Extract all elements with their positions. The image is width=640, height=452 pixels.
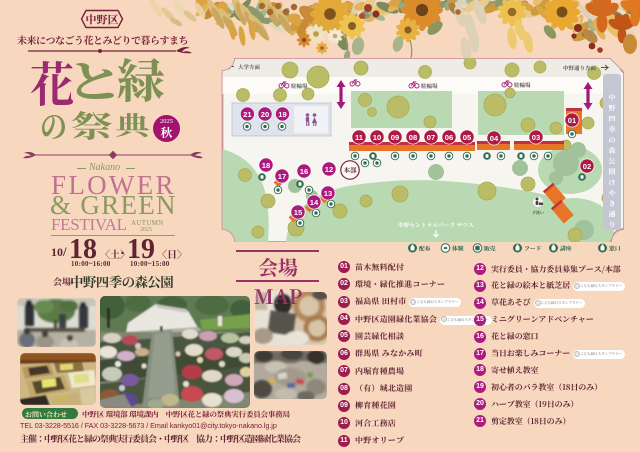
svg-text:10: 10 [373, 133, 381, 142]
svg-text:05: 05 [463, 133, 472, 142]
svg-text:大学方面: 大学方面 [238, 63, 261, 71]
svg-text:の: の [609, 135, 616, 145]
svg-text:り: り [609, 220, 616, 230]
svg-text:本部: 本部 [344, 166, 358, 175]
svg-text:04: 04 [490, 134, 499, 143]
svg-text:16: 16 [300, 167, 308, 176]
svg-text:21: 21 [243, 110, 252, 119]
svg-text:駐輪場: 駐輪場 [513, 81, 531, 89]
svg-text:中野通り方面: 中野通り方面 [563, 64, 597, 72]
svg-text:通: 通 [609, 210, 616, 220]
svg-text:フード: フード [524, 244, 542, 253]
svg-text:季: 季 [609, 125, 616, 135]
svg-text:販売: 販売 [484, 244, 496, 253]
svg-text:19: 19 [278, 110, 286, 119]
svg-text:17: 17 [278, 172, 286, 181]
svg-text:駐輪場: 駐輪場 [420, 82, 438, 90]
svg-text:11: 11 [355, 133, 364, 142]
svg-text:20: 20 [261, 110, 269, 119]
svg-text:18: 18 [262, 161, 270, 170]
svg-text:06: 06 [445, 133, 453, 142]
svg-text:四: 四 [609, 114, 616, 124]
svg-text:14: 14 [310, 198, 319, 207]
svg-text:07: 07 [427, 133, 435, 142]
svg-text:や: や [609, 188, 616, 198]
svg-text:中野区: 中野区 [86, 12, 119, 28]
svg-text:野: 野 [609, 104, 616, 114]
svg-text:中野セントラルパーク サウス: 中野セントラルパーク サウス [398, 221, 474, 229]
svg-text:15: 15 [294, 208, 303, 217]
svg-text:09: 09 [391, 133, 399, 142]
svg-text:講座: 講座 [560, 244, 572, 253]
svg-text:中: 中 [609, 93, 616, 103]
svg-text:12: 12 [325, 165, 333, 174]
svg-text:03: 03 [532, 133, 540, 142]
svg-text:手洗い: 手洗い [532, 210, 544, 216]
svg-text:き: き [609, 199, 616, 209]
svg-text:公: 公 [609, 157, 617, 167]
svg-text:01: 01 [568, 116, 577, 125]
svg-text:窓口: 窓口 [608, 244, 621, 253]
svg-text:け: け [609, 178, 616, 188]
svg-text:02: 02 [583, 162, 591, 171]
svg-text:13: 13 [324, 189, 332, 198]
svg-text:森: 森 [609, 146, 616, 156]
svg-text:配布: 配布 [419, 244, 431, 253]
svg-text:駐輪場: 駐輪場 [290, 82, 308, 90]
svg-text:08: 08 [409, 133, 417, 142]
svg-text:園: 園 [609, 167, 616, 177]
svg-text:体験: 体験 [452, 244, 464, 253]
